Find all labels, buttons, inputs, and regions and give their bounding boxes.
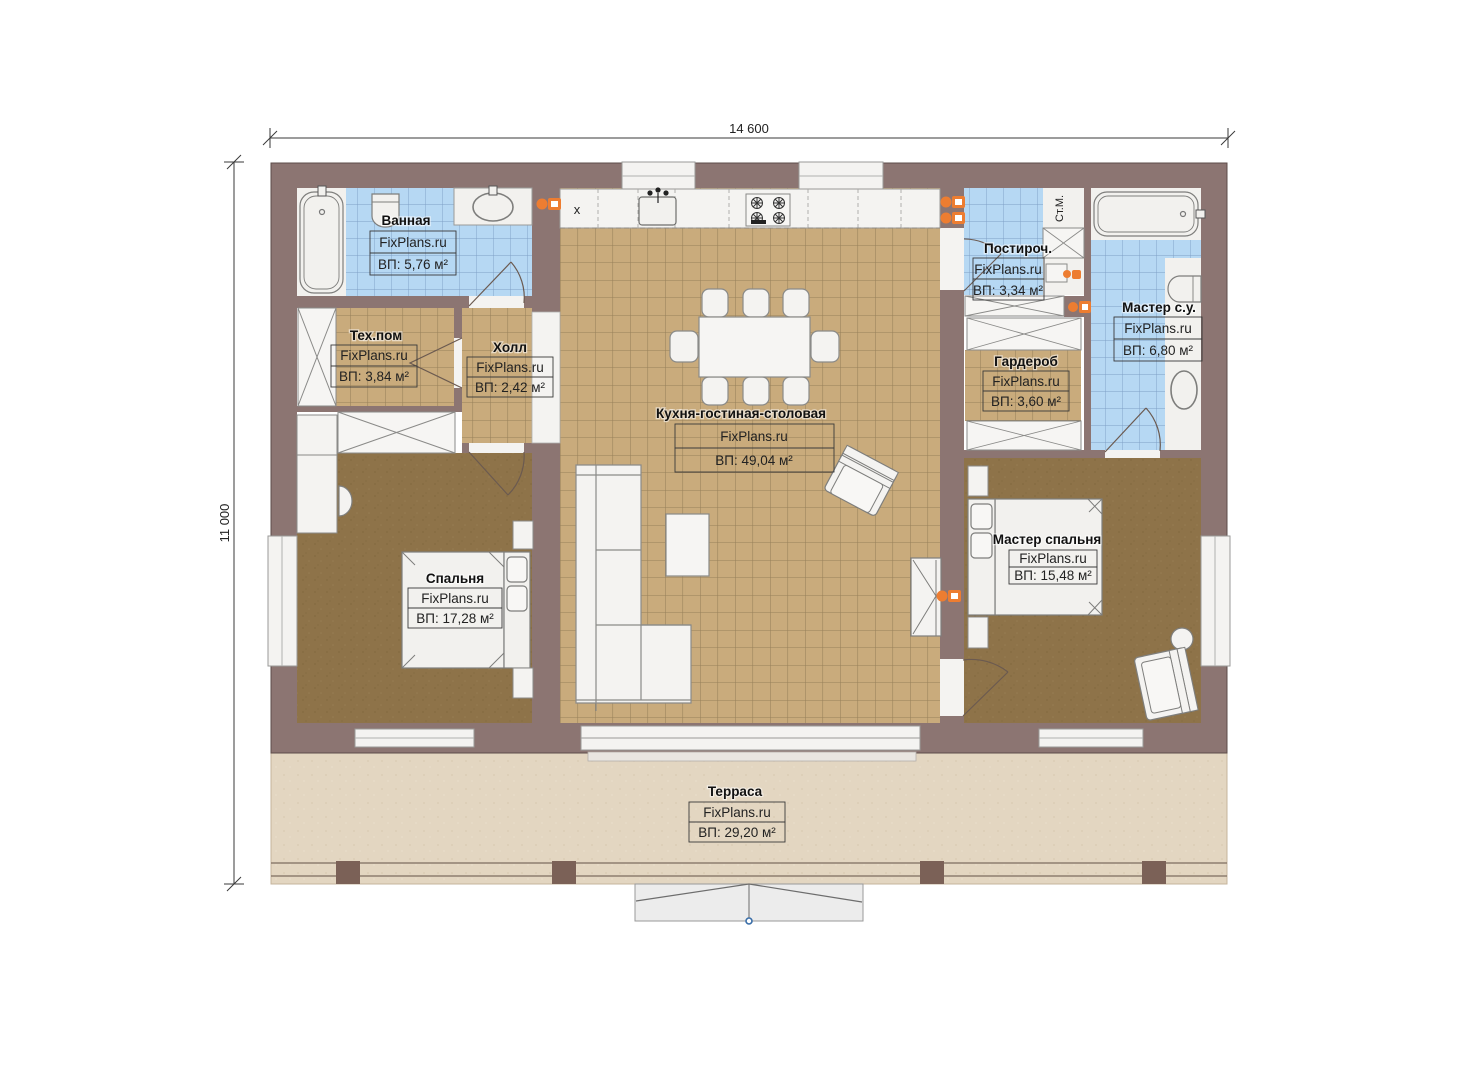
svg-text:x: x [574, 202, 581, 217]
svg-text:Ванная: Ванная [382, 213, 431, 228]
svg-text:ВП: 3,34 м²: ВП: 3,34 м² [973, 283, 1044, 298]
svg-text:FixPlans.ru: FixPlans.ru [974, 262, 1042, 277]
svg-text:ВП: 2,42 м²: ВП: 2,42 м² [475, 380, 546, 395]
svg-text:Ст.М.: Ст.М. [1054, 195, 1066, 222]
svg-text:FixPlans.ru: FixPlans.ru [340, 348, 408, 363]
svg-text:FixPlans.ru: FixPlans.ru [1019, 551, 1087, 566]
svg-text:FixPlans.ru: FixPlans.ru [992, 374, 1060, 389]
svg-text:ВП: 49,04 м²: ВП: 49,04 м² [715, 453, 793, 468]
svg-text:Мастер с.у.: Мастер с.у. [1122, 300, 1196, 315]
svg-text:FixPlans.ru: FixPlans.ru [421, 591, 489, 606]
svg-text:ВП: 5,76 м²: ВП: 5,76 м² [378, 257, 449, 272]
svg-text:ВП: 29,20 м²: ВП: 29,20 м² [698, 825, 776, 840]
svg-text:Кухня-гостиная-столовая: Кухня-гостиная-столовая [656, 406, 826, 421]
svg-text:11 000: 11 000 [217, 504, 232, 543]
svg-text:Терраса: Терраса [708, 784, 763, 799]
svg-text:FixPlans.ru: FixPlans.ru [720, 429, 788, 444]
svg-text:Мастер спальня: Мастер спальня [993, 532, 1102, 547]
svg-text:FixPlans.ru: FixPlans.ru [1124, 321, 1192, 336]
svg-text:ВП: 17,28 м²: ВП: 17,28 м² [416, 611, 494, 626]
svg-text:FixPlans.ru: FixPlans.ru [379, 235, 447, 250]
svg-text:Постироч.: Постироч. [984, 241, 1052, 256]
svg-text:Тех.пом: Тех.пом [350, 328, 402, 343]
svg-text:Спальня: Спальня [426, 571, 484, 586]
svg-text:Гардероб: Гардероб [994, 354, 1058, 369]
svg-text:ВП: 3,84 м²: ВП: 3,84 м² [339, 369, 410, 384]
svg-text:ВП: 6,80 м²: ВП: 6,80 м² [1123, 343, 1194, 358]
svg-text:ВП: 3,60 м²: ВП: 3,60 м² [991, 394, 1062, 409]
svg-text:14 600: 14 600 [729, 121, 769, 136]
svg-text:ВП: 15,48 м²: ВП: 15,48 м² [1014, 568, 1092, 583]
svg-text:FixPlans.ru: FixPlans.ru [703, 805, 771, 820]
svg-text:FixPlans.ru: FixPlans.ru [476, 360, 544, 375]
svg-text:Холл: Холл [493, 340, 527, 355]
